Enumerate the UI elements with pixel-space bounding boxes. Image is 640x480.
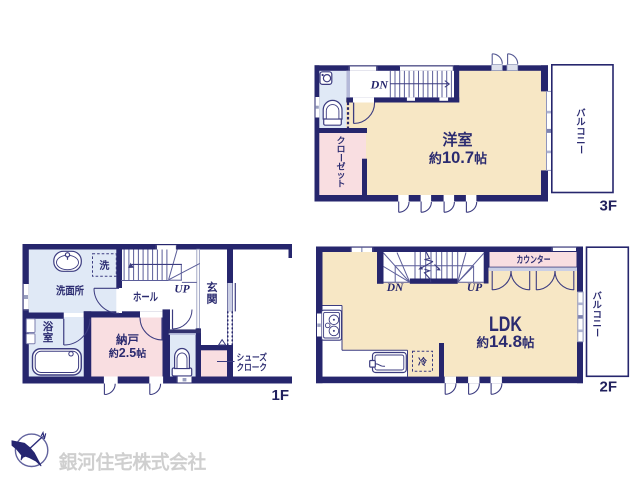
- svg-text:1F: 1F: [271, 387, 289, 404]
- svg-text:冷: 冷: [418, 356, 427, 367]
- svg-text:洗面所: 洗面所: [56, 284, 84, 297]
- svg-text:2F: 2F: [599, 379, 617, 396]
- svg-text:約2.5帖: 約2.5帖: [109, 346, 146, 360]
- svg-text:クローク: クローク: [237, 363, 268, 373]
- svg-text:ホール: ホール: [133, 291, 158, 304]
- svg-text:UP: UP: [174, 284, 190, 296]
- svg-text:3F: 3F: [599, 198, 617, 215]
- svg-text:洋室: 洋室: [443, 130, 473, 149]
- svg-text:洗: 洗: [99, 259, 109, 272]
- svg-text:関: 関: [207, 293, 218, 306]
- svg-text:ー: ー: [576, 145, 586, 154]
- svg-text:カウンター: カウンター: [517, 254, 551, 266]
- svg-text:約10.7帖: 約10.7帖: [429, 149, 487, 167]
- svg-text:UP: UP: [467, 282, 483, 294]
- svg-text:納戸: 納戸: [116, 333, 139, 347]
- svg-text:シューズ: シューズ: [237, 352, 268, 363]
- svg-text:ー: ー: [592, 328, 602, 337]
- svg-text:DN: DN: [386, 282, 404, 294]
- svg-text:玄: 玄: [207, 280, 218, 294]
- svg-text:室: 室: [43, 331, 54, 344]
- svg-text:DN: DN: [370, 78, 390, 92]
- svg-text:銀河住宅株式会社: 銀河住宅株式会社: [59, 451, 207, 473]
- svg-text:ト: ト: [337, 179, 346, 189]
